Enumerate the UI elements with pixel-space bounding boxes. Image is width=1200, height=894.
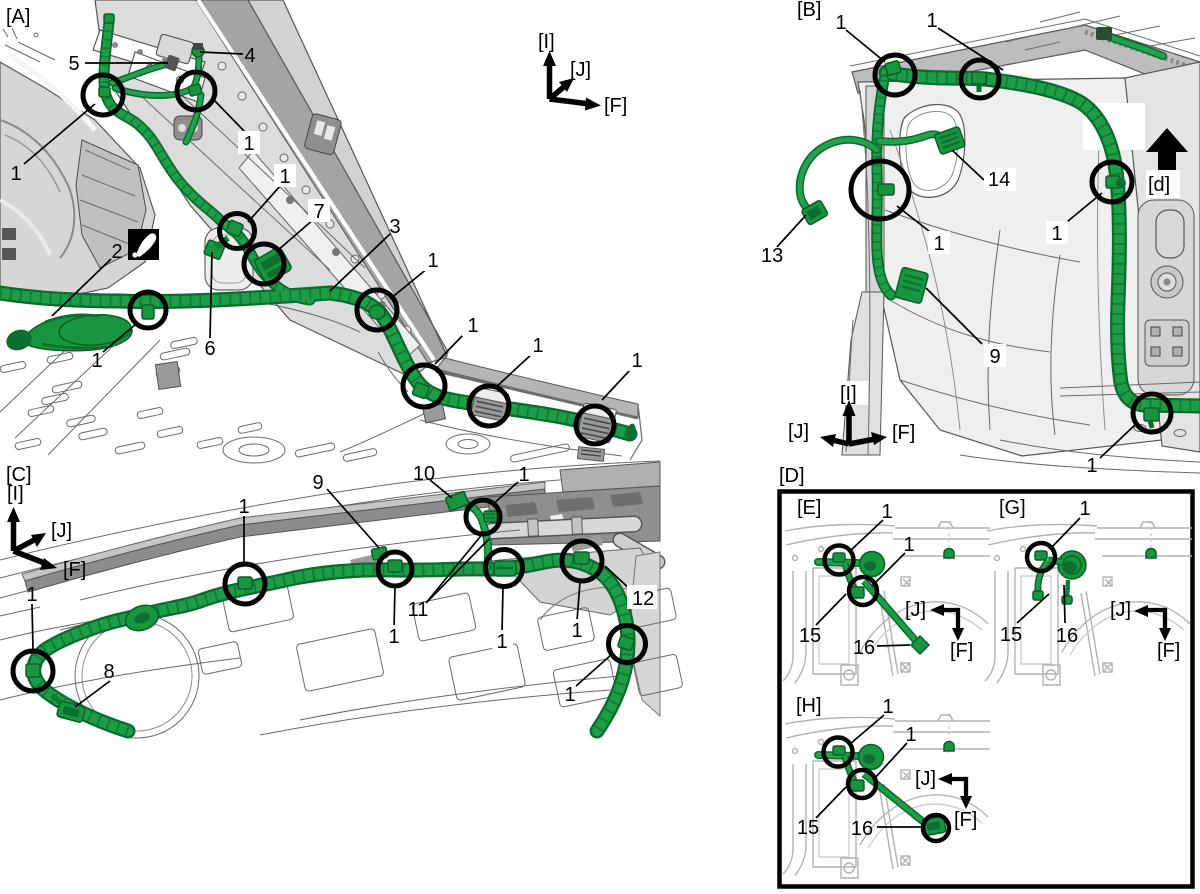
svg-text:7: 7 xyxy=(313,201,324,223)
svg-text:1: 1 xyxy=(238,496,249,518)
svg-text:1: 1 xyxy=(882,696,893,718)
svg-text:1: 1 xyxy=(631,350,642,372)
svg-text:1: 1 xyxy=(1086,455,1097,477)
svg-text:[I]: [I] xyxy=(7,483,24,505)
svg-text:[J]: [J] xyxy=(570,59,591,81)
svg-text:[J]: [J] xyxy=(1110,599,1131,621)
svg-text:[G]: [G] xyxy=(999,497,1026,519)
svg-text:1: 1 xyxy=(467,315,478,337)
svg-text:1: 1 xyxy=(279,166,290,188)
svg-text:13: 13 xyxy=(761,245,783,267)
svg-text:10: 10 xyxy=(413,463,435,485)
svg-text:1: 1 xyxy=(564,684,575,706)
svg-text:1: 1 xyxy=(243,133,254,155)
svg-text:9: 9 xyxy=(312,472,323,494)
svg-text:8: 8 xyxy=(103,661,114,683)
svg-text:12: 12 xyxy=(632,588,654,610)
svg-text:1: 1 xyxy=(518,464,529,486)
svg-text:5: 5 xyxy=(68,53,79,75)
svg-text:[J]: [J] xyxy=(905,599,926,621)
svg-text:2: 2 xyxy=(111,241,122,263)
svg-text:1: 1 xyxy=(933,233,944,255)
svg-text:[F]: [F] xyxy=(604,95,627,117)
svg-text:1: 1 xyxy=(903,534,914,556)
svg-text:6: 6 xyxy=(204,338,215,360)
svg-text:[F]: [F] xyxy=(1157,640,1180,662)
svg-text:4: 4 xyxy=(244,45,255,67)
svg-text:3: 3 xyxy=(389,216,400,238)
svg-text:1: 1 xyxy=(905,724,916,746)
svg-text:1: 1 xyxy=(91,350,102,372)
svg-text:[F]: [F] xyxy=(892,422,915,444)
svg-text:[H]: [H] xyxy=(796,695,822,717)
svg-text:15: 15 xyxy=(797,817,819,839)
svg-text:16: 16 xyxy=(853,637,875,659)
svg-text:14: 14 xyxy=(988,169,1010,191)
svg-text:15: 15 xyxy=(799,625,821,647)
svg-text:[J]: [J] xyxy=(788,421,809,443)
svg-text:1: 1 xyxy=(388,626,399,648)
svg-text:1: 1 xyxy=(1079,498,1090,520)
svg-text:[A]: [A] xyxy=(6,6,30,28)
svg-text:16: 16 xyxy=(1056,625,1078,647)
svg-text:[F]: [F] xyxy=(954,809,977,831)
svg-text:[D]: [D] xyxy=(779,465,805,487)
svg-text:16: 16 xyxy=(851,818,873,840)
svg-text:[J]: [J] xyxy=(915,768,936,790)
svg-text:15: 15 xyxy=(1000,624,1022,646)
svg-text:1: 1 xyxy=(881,501,892,523)
svg-text:[d]: [d] xyxy=(1148,174,1170,196)
svg-text:1: 1 xyxy=(835,12,846,34)
svg-text:9: 9 xyxy=(989,346,1000,368)
svg-text:[I]: [I] xyxy=(538,31,555,53)
svg-text:[B]: [B] xyxy=(797,0,821,21)
svg-text:1: 1 xyxy=(1051,223,1062,245)
svg-text:11: 11 xyxy=(408,599,429,621)
svg-text:1: 1 xyxy=(427,250,438,272)
svg-text:[F]: [F] xyxy=(63,559,86,581)
svg-text:1: 1 xyxy=(571,620,582,642)
svg-text:[F]: [F] xyxy=(950,640,973,662)
svg-text:1: 1 xyxy=(26,584,37,606)
svg-text:1: 1 xyxy=(926,10,937,32)
svg-text:[E]: [E] xyxy=(797,497,821,519)
svg-text:[J]: [J] xyxy=(51,520,72,542)
svg-text:1: 1 xyxy=(496,631,507,653)
svg-text:1: 1 xyxy=(532,335,543,357)
svg-text:1: 1 xyxy=(10,163,21,185)
